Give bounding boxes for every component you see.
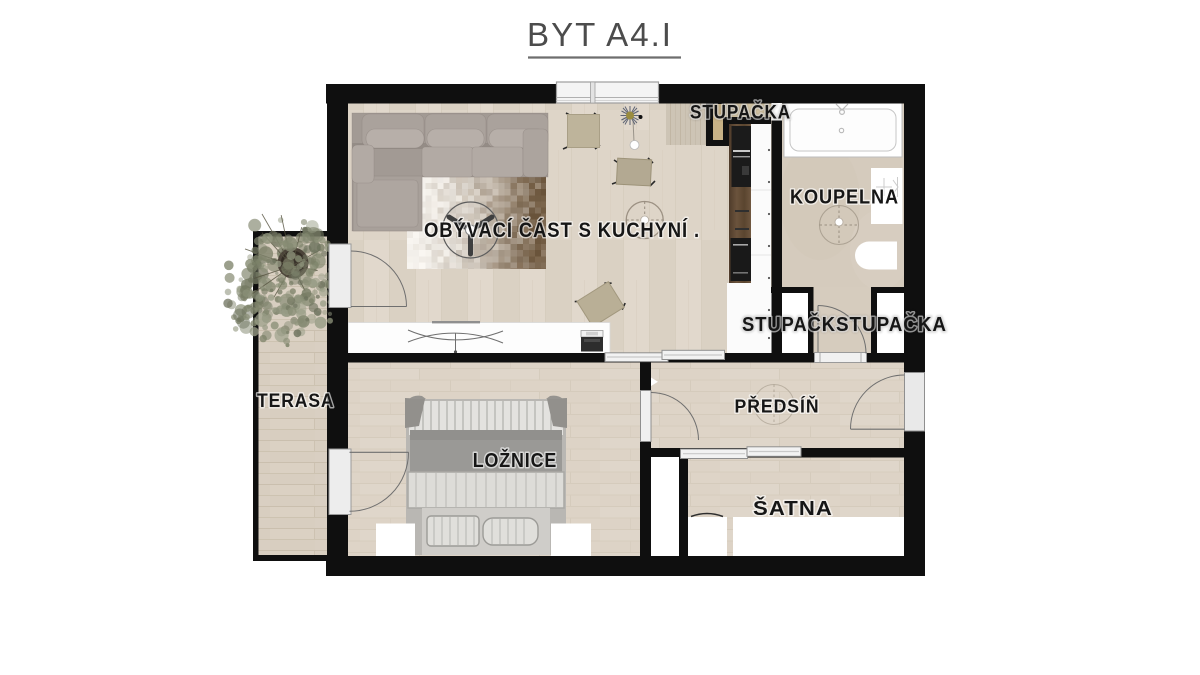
svg-text:TERASA: TERASA xyxy=(257,390,335,412)
svg-text:ŠATNA: ŠATNA xyxy=(753,496,833,520)
svg-text:STUPAČKA: STUPAČKA xyxy=(836,312,947,336)
svg-text:BYT A4.I: BYT A4.I xyxy=(527,16,673,53)
svg-text:STUPAČK: STUPAČK xyxy=(742,312,836,336)
svg-text:PŘEDSÍŇ: PŘEDSÍŇ xyxy=(735,396,820,417)
svg-text:KOUPELNA: KOUPELNA xyxy=(790,187,899,209)
svg-text:OBÝVACÍ ČÁST S KUCHYNÍ .: OBÝVACÍ ČÁST S KUCHYNÍ . xyxy=(424,217,700,242)
svg-text:STUPAČKA: STUPAČKA xyxy=(690,102,791,124)
svg-text:LOŽNICE: LOŽNICE xyxy=(473,448,558,472)
